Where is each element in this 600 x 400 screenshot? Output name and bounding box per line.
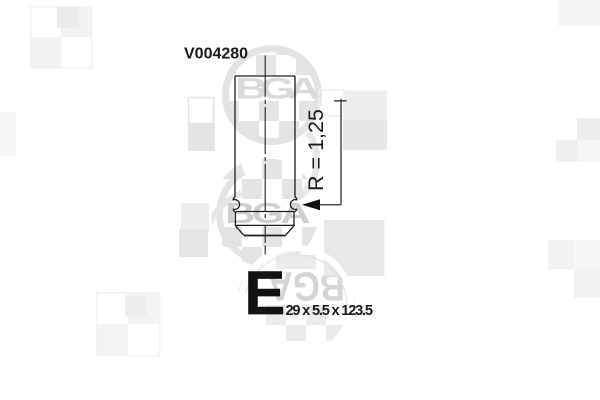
svg-text:29 x 5.5 x 123.5: 29 x 5.5 x 123.5 (286, 303, 373, 319)
svg-text:V004280: V004280 (184, 46, 248, 63)
svg-text:R = 1,25: R = 1,25 (304, 109, 328, 191)
svg-text:E: E (245, 259, 286, 327)
svg-text:BGA: BGA (235, 72, 319, 106)
